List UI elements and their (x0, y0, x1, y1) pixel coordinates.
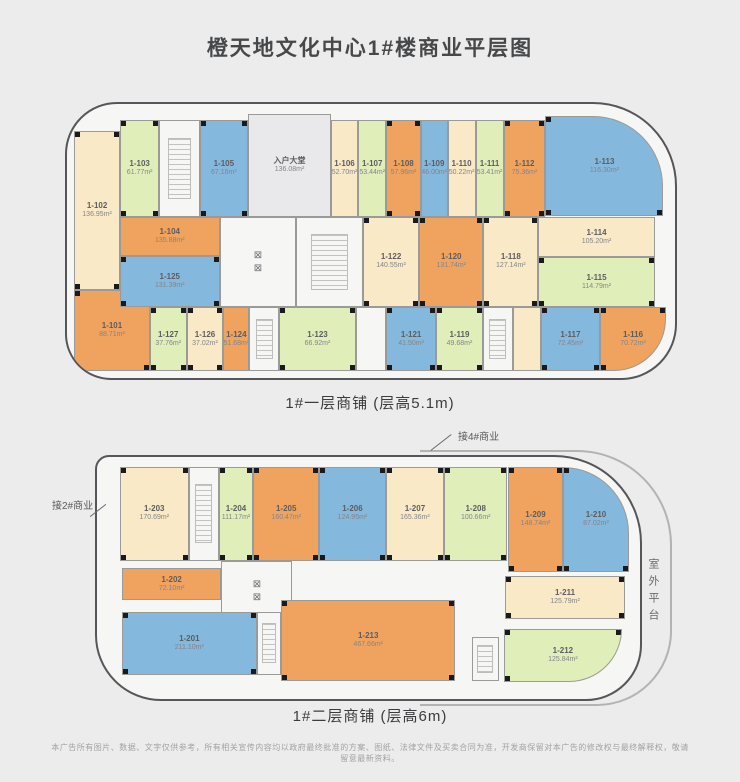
unit-area-label: 87.02m² (583, 520, 609, 529)
column-marker (616, 676, 621, 681)
unit-id-label: 1-209 (525, 510, 545, 520)
unit-area-label: 37.76m² (155, 340, 181, 349)
unit-1-108: 1-10857.96m² (386, 120, 421, 216)
unit-id-label: 1-110 (452, 159, 472, 169)
column-marker (509, 566, 514, 571)
column-marker (477, 308, 482, 313)
column-marker (449, 601, 454, 606)
column-marker (242, 211, 247, 216)
page-title: 橙天地文化中心1#楼商业平层图 (0, 32, 740, 62)
column-marker (280, 308, 285, 313)
column-marker (380, 468, 385, 473)
unit-area-label: 53.41m² (477, 169, 503, 178)
floor2-plan: 1-203170.69m²1-204111.17m²1-205160.47m²1… (95, 455, 642, 701)
column-marker (123, 669, 128, 674)
column-marker (477, 365, 482, 370)
service-area (159, 120, 199, 216)
stairs-icon (256, 319, 273, 360)
column-marker (430, 308, 435, 313)
column-marker (183, 468, 188, 473)
unit-area-label: 49.68m² (447, 340, 473, 349)
column-marker (75, 284, 80, 289)
unit-area-label: 75.36m² (512, 169, 538, 178)
column-marker (380, 555, 385, 560)
unit-id-label: 1-118 (501, 252, 521, 262)
column-marker (619, 613, 624, 618)
unit-area-label: 116.30m² (590, 167, 619, 176)
column-marker (75, 365, 80, 370)
stairs-icon (262, 623, 276, 663)
column-marker (282, 601, 287, 606)
unit-area-label: 131.39m² (155, 282, 185, 291)
unit-id-label: 1-208 (465, 504, 485, 514)
column-marker (387, 555, 392, 560)
column-marker (387, 308, 392, 313)
column-marker (594, 365, 599, 370)
column-marker (601, 308, 606, 313)
unit-id-label: 1-114 (587, 228, 607, 238)
column-marker (532, 301, 537, 306)
unit-1-117: 1-11772.45m² (541, 307, 601, 371)
unit-id-label: 1-109 (424, 159, 444, 169)
unit-id-label: 入户大堂 (274, 156, 306, 166)
unit-id-label: 1-115 (587, 273, 607, 283)
column-marker (616, 630, 621, 635)
column-marker (564, 566, 569, 571)
column-marker (251, 669, 256, 674)
column-marker (313, 468, 318, 473)
unit-id-label: 1-113 (594, 157, 614, 167)
unit-id-label: 1-201 (179, 634, 199, 644)
unit-1-114: 1-114105.20m² (538, 217, 655, 258)
column-marker (420, 218, 425, 223)
column-marker (649, 301, 654, 306)
unit-1-126: 1-12637.02m² (187, 307, 223, 371)
column-marker (121, 468, 126, 473)
floor2-caption: 1#二层商铺 (层高6m) (0, 705, 740, 726)
unit-id-label: 1-106 (334, 159, 354, 169)
column-marker (477, 218, 482, 223)
unit-area-label: 114.79m² (582, 283, 611, 292)
unit-area-label: 127.14m² (496, 262, 526, 271)
column-marker (564, 468, 569, 473)
column-marker (254, 468, 259, 473)
unit-1-105: 1-10567.16m² (200, 120, 249, 216)
unit-area-label: 66.92m² (305, 340, 331, 349)
unit-1-107: 1-10753.44m² (358, 120, 386, 216)
column-marker (505, 676, 510, 681)
unit-area-label: 467.66m² (353, 641, 383, 650)
column-marker (153, 211, 158, 216)
column-marker (657, 210, 662, 215)
unit-id-label: 1-202 (161, 575, 181, 585)
column-marker (220, 555, 225, 560)
unit-id-label: 1-123 (307, 330, 327, 340)
column-marker (557, 468, 562, 473)
column-marker (649, 258, 654, 263)
column-marker (320, 555, 325, 560)
floor1-plan: 1-102136.95m²1-10188.71m²1-10361.77m²1-1… (65, 102, 677, 380)
unit-1-102: 1-102136.95m² (74, 131, 120, 290)
unit-area-label: 136.95m² (82, 211, 112, 220)
unit-id-label: 1-210 (586, 510, 606, 520)
unit-1-123: 1-12366.92m² (279, 307, 356, 371)
column-marker (350, 365, 355, 370)
column-marker (657, 117, 662, 122)
column-marker (153, 121, 158, 126)
unit-id-label: 1-102 (87, 201, 107, 211)
column-marker (660, 308, 665, 313)
column-marker (542, 308, 547, 313)
column-marker (506, 613, 511, 618)
column-marker (501, 555, 506, 560)
column-marker (75, 132, 80, 137)
unit-area-label: 46.00m² (421, 169, 447, 178)
unit-area-label: 70.72m² (620, 340, 646, 349)
unit-area-label: 125.79m² (550, 598, 580, 607)
unit-area-label: 170.69m² (139, 514, 169, 523)
column-marker (420, 301, 425, 306)
column-marker (415, 211, 420, 216)
column-marker (437, 308, 442, 313)
unit-1-120: 1-120131.74m² (419, 217, 483, 307)
unit-area-label: 72.10m² (159, 585, 185, 594)
column-marker (320, 468, 325, 473)
unit-1-201: 1-201211.10m² (122, 612, 257, 675)
column-marker (509, 468, 514, 473)
column-marker (282, 675, 287, 680)
column-marker (242, 121, 247, 126)
service-area: ⊠ ⊠ (220, 217, 297, 307)
stairs-icon (195, 484, 212, 543)
unit-1-109: 1-10946.00m² (421, 120, 448, 216)
unit-id-label: 1-101 (102, 321, 122, 331)
unit-id-label: 1-213 (358, 631, 378, 641)
unit-area-label: 88.71m² (99, 331, 125, 340)
column-marker (501, 468, 506, 473)
service-area (189, 467, 219, 561)
unit-id-label: 1-112 (514, 159, 534, 169)
column-marker (539, 301, 544, 306)
unit-1-110: 1-11050.22m² (448, 120, 476, 216)
column-marker (121, 211, 126, 216)
unit-area-label: 61.77m² (127, 169, 153, 178)
column-marker (201, 121, 206, 126)
unit-id-label: 1-104 (160, 227, 180, 237)
unit-area-label: 41.50m² (398, 340, 424, 349)
column-marker (214, 301, 219, 306)
column-marker (364, 218, 369, 223)
column-marker (183, 555, 188, 560)
service-area (472, 637, 499, 681)
unit-id-label: 1-105 (214, 159, 234, 169)
unit-area-label: 72.45m² (558, 340, 584, 349)
service-area (249, 307, 279, 371)
column-marker (220, 468, 225, 473)
unit-id-label: 1-120 (441, 252, 461, 262)
column-marker (121, 121, 126, 126)
unit-area-label: 100.66m² (461, 514, 491, 523)
column-marker (350, 308, 355, 313)
unit-area-label: 111.17m² (222, 514, 251, 523)
service-area (296, 217, 363, 307)
service-area (513, 307, 541, 371)
unit-1-122: 1-122140.55m² (363, 217, 419, 307)
unit-1-106: 1-10652.70m² (331, 120, 358, 216)
unit-id-label: 1-205 (276, 504, 296, 514)
unit-id-label: 1-126 (195, 330, 215, 340)
column-marker (387, 211, 392, 216)
unit-1-124: 1-12451.68m² (223, 307, 249, 371)
column-marker (505, 211, 510, 216)
unit-1-103: 1-10361.77m² (120, 120, 160, 216)
connect-2-label: 接2#商业 (52, 497, 93, 512)
unit-id-label: 1-111 (480, 159, 500, 169)
unit-1-212: 1-212125.84m² (504, 629, 622, 682)
column-marker (188, 365, 193, 370)
service-area (483, 307, 513, 371)
column-marker (539, 211, 544, 216)
connect-4-label: 接4#商业 (458, 428, 499, 443)
unit-1-115: 1-115114.79m² (538, 257, 655, 306)
unit-area-label: 165.36m² (400, 514, 430, 523)
column-marker (445, 468, 450, 473)
column-marker (445, 555, 450, 560)
unit-1-207: 1-207165.36m² (386, 467, 444, 561)
unit-area-label: 135.88m² (155, 237, 185, 246)
service-area (257, 612, 281, 675)
column-marker (251, 613, 256, 618)
unit-area-label: 37.02m² (192, 340, 218, 349)
unit-1-202: 1-20272.10m² (122, 568, 221, 599)
unit-1-112: 1-11275.36m² (504, 120, 546, 216)
column-marker (557, 566, 562, 571)
unit-area-label: 51.68m² (223, 340, 249, 349)
column-marker (546, 210, 551, 215)
column-marker (539, 121, 544, 126)
column-marker (151, 308, 156, 313)
floor1-caption: 1#一层商铺 (层高5.1m) (0, 392, 740, 413)
unit-1-208: 1-208100.66m² (444, 467, 508, 561)
column-marker (114, 132, 119, 137)
unit-id-label: 1-204 (226, 504, 246, 514)
column-marker (546, 117, 551, 122)
column-marker (438, 555, 443, 560)
unit-area-label: 67.16m² (211, 169, 237, 178)
column-marker (619, 577, 624, 582)
column-marker (121, 257, 126, 262)
unit-area-label: 148.74m² (521, 520, 551, 529)
unit-area-label: 124.95m² (338, 514, 368, 523)
unit-id-label: 1-206 (342, 504, 362, 514)
column-marker (594, 308, 599, 313)
unit-1-206: 1-206124.95m² (319, 467, 386, 561)
unit-area-label: 105.20m² (582, 238, 612, 247)
unit-id-label: 1-117 (560, 330, 580, 340)
service-area (356, 307, 386, 371)
column-marker (660, 365, 665, 370)
unit-area-label: 52.70m² (332, 169, 358, 178)
unit-id-label: 1-119 (449, 330, 469, 340)
stairs-icon (477, 645, 493, 673)
column-marker (387, 121, 392, 126)
unit-area-label: 57.96m² (391, 169, 417, 178)
column-marker (484, 218, 489, 223)
unit-area-label: 136.08m² (275, 166, 305, 175)
column-marker (601, 365, 606, 370)
unit-1-205: 1-205160.47m² (253, 467, 319, 561)
column-marker (532, 218, 537, 223)
unit-id-label: 1-121 (401, 330, 421, 340)
terrace-label: 室外平台 (645, 558, 661, 626)
column-marker (505, 121, 510, 126)
column-marker (247, 468, 252, 473)
column-marker (505, 630, 510, 635)
unit-id-label: 1-124 (226, 330, 246, 340)
column-marker (121, 555, 126, 560)
elevator-icon: ⊠ ⊠ (254, 249, 262, 275)
unit-1-125: 1-125131.39m² (120, 256, 220, 307)
column-marker (413, 301, 418, 306)
column-marker (151, 365, 156, 370)
unit-1-116: 1-11670.72m² (600, 307, 666, 371)
unit-id-label: 1-108 (393, 159, 413, 169)
column-marker (413, 218, 418, 223)
column-marker (437, 365, 442, 370)
column-marker (415, 121, 420, 126)
unit-id-label: 1-122 (381, 252, 401, 262)
unit-id-label: 1-127 (158, 330, 178, 340)
unit-area-label: 131.74m² (436, 262, 466, 271)
unit-area-label: 125.84m² (548, 656, 578, 665)
column-marker (484, 301, 489, 306)
column-marker (121, 301, 126, 306)
column-marker (539, 258, 544, 263)
unit-id-label: 1-103 (129, 159, 149, 169)
unit-id-label: 1-125 (160, 272, 180, 282)
column-marker (188, 308, 193, 313)
column-marker (123, 613, 128, 618)
column-marker (387, 365, 392, 370)
column-marker (542, 365, 547, 370)
unit-id-label: 1-211 (555, 588, 575, 598)
column-marker (75, 291, 80, 296)
disclaimer-text: 本广告所有图片、数据、文字仅供参考，所有相关宣传内容均以政府最终批准的方案、图纸… (50, 742, 690, 764)
column-marker (364, 301, 369, 306)
unit-id-label: 1-207 (405, 504, 425, 514)
unit-area-label: 211.10m² (175, 644, 204, 653)
unit-id-label: 1-107 (362, 159, 382, 169)
column-marker (217, 308, 222, 313)
column-marker (623, 468, 628, 473)
column-marker (181, 365, 186, 370)
unit-1-213: 1-213467.66m² (281, 600, 455, 681)
unit-1-119: 1-11949.68m² (436, 307, 483, 371)
unit-area-label: 53.44m² (359, 169, 385, 178)
column-marker (280, 365, 285, 370)
unit-1-104: 1-104135.88m² (120, 217, 220, 256)
column-marker (449, 675, 454, 680)
stairs-icon (311, 234, 349, 290)
unit-id-label: 1-212 (553, 646, 573, 656)
unit-area-label: 160.47m² (271, 514, 301, 523)
unit-1-121: 1-12141.50m² (386, 307, 436, 371)
column-marker (247, 555, 252, 560)
column-marker (201, 211, 206, 216)
unit-1-211: 1-211125.79m² (505, 576, 624, 620)
column-marker (313, 555, 318, 560)
elevator-icon: ⊠ ⊠ (253, 578, 261, 604)
connector-line-top (430, 434, 451, 451)
column-marker (438, 468, 443, 473)
column-marker (506, 577, 511, 582)
column-marker (181, 308, 186, 313)
column-marker (254, 555, 259, 560)
unit-area-label: 140.55m² (376, 262, 406, 271)
entrance-lobby: 入户大堂136.08m² (248, 114, 331, 217)
unit-1-113: 1-113116.30m² (545, 116, 663, 216)
column-marker (114, 284, 119, 289)
unit-id-label: 1-203 (144, 504, 164, 514)
unit-1-203: 1-203170.69m² (120, 467, 189, 561)
unit-1-204: 1-204111.17m² (219, 467, 254, 561)
unit-1-209: 1-209148.74m² (508, 467, 564, 572)
column-marker (623, 566, 628, 571)
unit-1-111: 1-11153.41m² (476, 120, 504, 216)
column-marker (477, 301, 482, 306)
unit-1-118: 1-118127.14m² (483, 217, 538, 307)
column-marker (430, 365, 435, 370)
column-marker (144, 365, 149, 370)
column-marker (387, 468, 392, 473)
unit-id-label: 1-116 (623, 330, 643, 340)
poster: 橙天地文化中心1#楼商业平层图 1-102136.95m²1-10188.71m… (0, 0, 740, 782)
column-marker (217, 365, 222, 370)
unit-1-127: 1-12737.76m² (150, 307, 187, 371)
unit-area-label: 50.22m² (449, 169, 475, 178)
column-marker (214, 257, 219, 262)
stairs-icon (168, 138, 191, 199)
stairs-icon (489, 319, 506, 360)
